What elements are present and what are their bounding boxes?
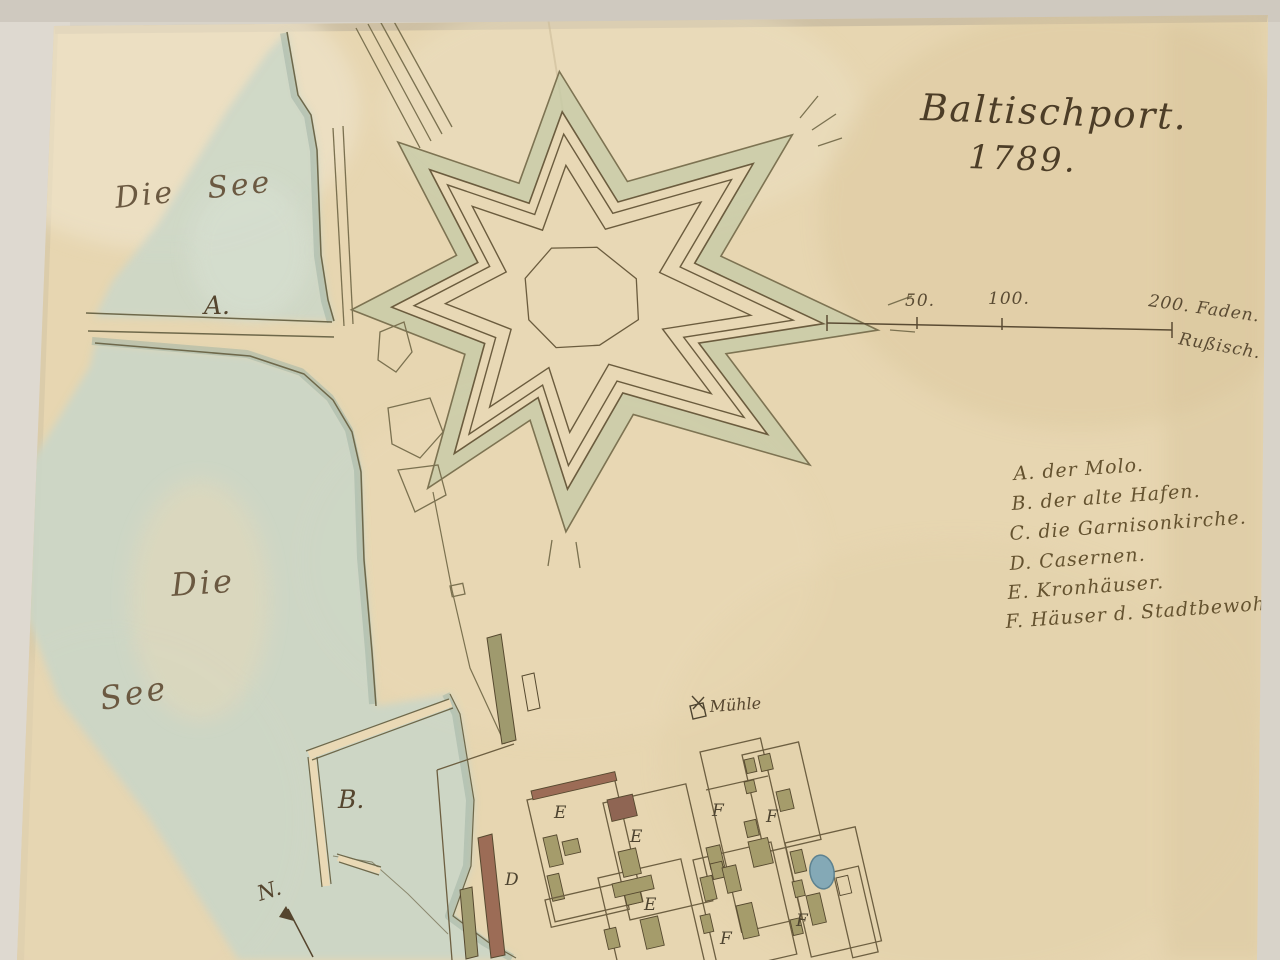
- sea-label-die: Die: [169, 562, 236, 604]
- block-letter: E: [643, 895, 657, 915]
- block-letter: E: [553, 803, 567, 823]
- marker-b: B.: [337, 785, 364, 814]
- marker-a: A.: [202, 291, 230, 320]
- block-letter: D: [504, 870, 519, 890]
- scanned-map-photo: Baltischport. 1789. Die See Die See A. B…: [0, 0, 1280, 960]
- map-year: 1789.: [968, 137, 1079, 180]
- block-letter: F: [719, 929, 733, 949]
- scale-tick-50: 50.: [905, 291, 935, 311]
- block-letter: E: [629, 827, 643, 847]
- map-canvas: Baltischport. 1789. Die See Die See A. B…: [0, 0, 1280, 960]
- scale-tick-100: 100.: [988, 289, 1030, 309]
- block-letter: F: [795, 911, 809, 931]
- mill-label: Mühle: [708, 693, 762, 716]
- block-letter: F: [765, 807, 779, 827]
- block-letter: F: [711, 801, 725, 821]
